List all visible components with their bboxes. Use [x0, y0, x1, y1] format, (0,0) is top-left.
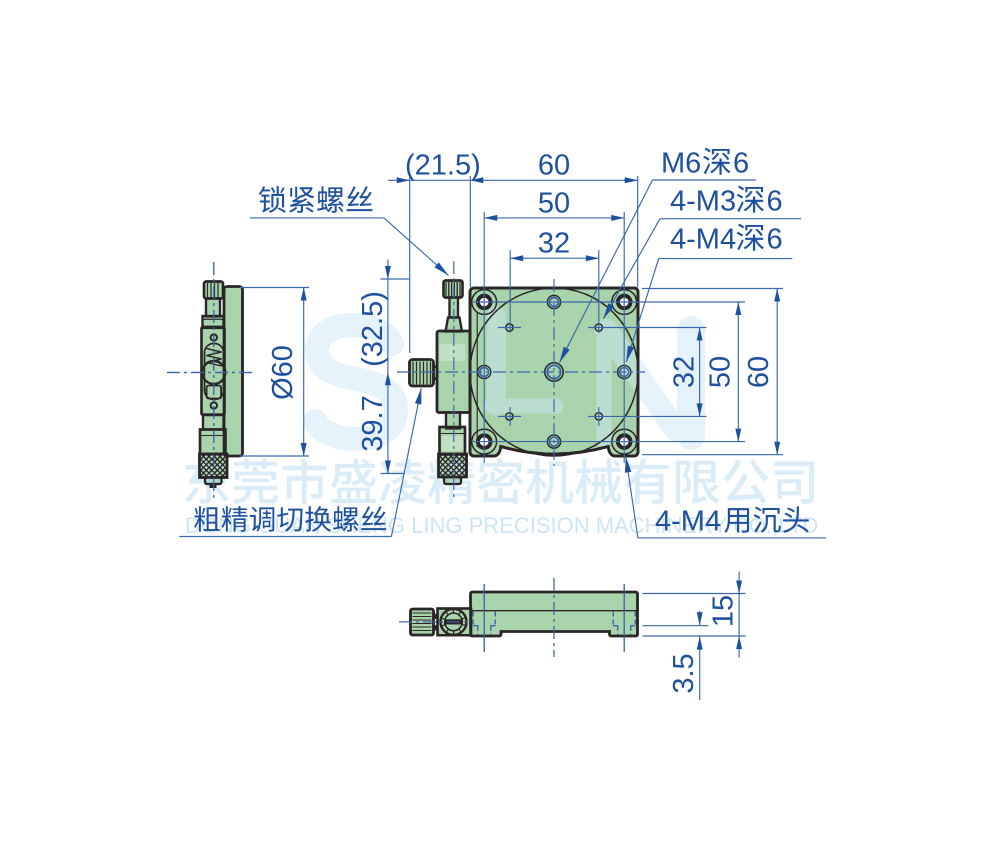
svg-text:4-M3: 4-M3 — [670, 186, 736, 218]
svg-text:6: 6 — [733, 148, 749, 180]
svg-text:32: 32 — [669, 356, 701, 388]
svg-text:4-M4: 4-M4 — [670, 224, 736, 256]
svg-text:6: 6 — [767, 224, 783, 256]
svg-text:50: 50 — [538, 187, 570, 219]
svg-text:4-M4: 4-M4 — [655, 506, 721, 538]
svg-text:60: 60 — [743, 356, 775, 388]
svg-text:Ø60: Ø60 — [267, 345, 299, 400]
svg-text:39.7: 39.7 — [357, 395, 389, 451]
svg-text:60: 60 — [538, 150, 570, 182]
svg-text:15: 15 — [708, 595, 740, 627]
svg-text:6: 6 — [767, 186, 783, 218]
svg-text:(21.5): (21.5) — [405, 150, 481, 182]
svg-text:(32.5): (32.5) — [357, 291, 389, 367]
svg-text:M6: M6 — [661, 148, 701, 180]
svg-text:3.5: 3.5 — [668, 653, 700, 693]
svg-text:50: 50 — [705, 356, 737, 388]
svg-text:32: 32 — [538, 228, 570, 260]
